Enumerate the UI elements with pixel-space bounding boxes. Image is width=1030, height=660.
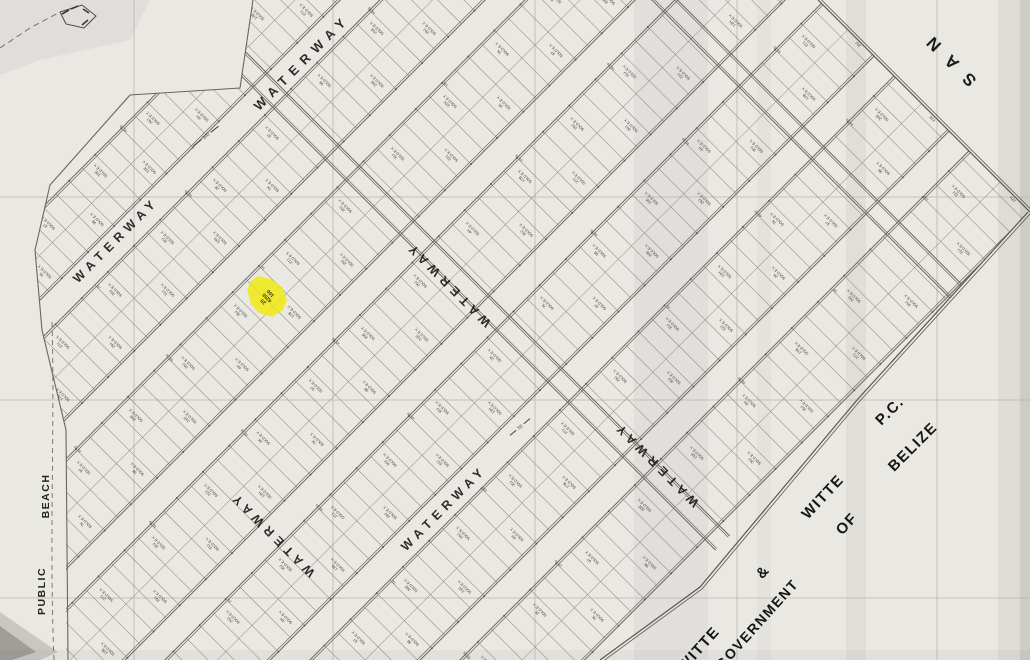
public-label: PUBLIC xyxy=(36,567,48,615)
beach-label: BEACH xyxy=(40,474,52,519)
map-canvas: 27JSOLD E.Y.29JSOLD E.Y.48.3930JSOLD E.Y… xyxy=(0,0,1030,660)
scanned-survey-map: 27JSOLD E.Y.29JSOLD E.Y.48.3930JSOLD E.Y… xyxy=(0,0,1030,660)
